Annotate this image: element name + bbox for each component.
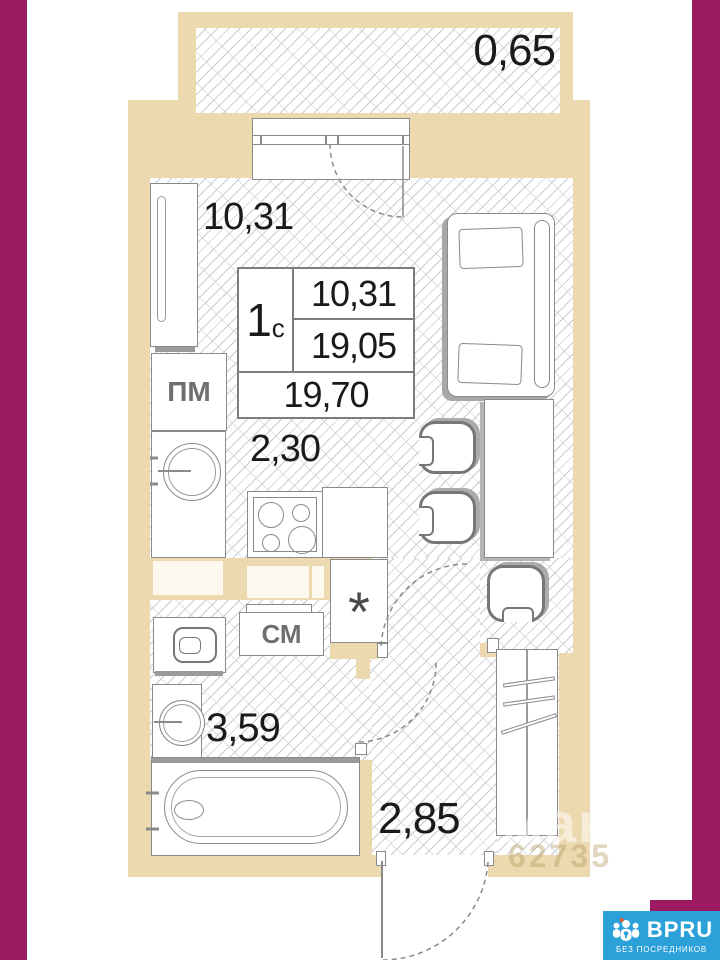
kitchen-counter: [322, 487, 388, 558]
door-jamb: [376, 851, 386, 866]
door-jamb: [484, 851, 494, 866]
hanger: [503, 676, 555, 687]
unit-type-suffix: с: [272, 313, 285, 344]
bpru-logo: BPRU БЕЗ ПОСРЕДНИКОВ: [603, 911, 720, 960]
wall-stub: [330, 643, 378, 659]
wall-niche: [153, 561, 223, 595]
toilet-shadow: [155, 671, 223, 676]
door-jamb: [377, 643, 388, 658]
bathtub: [151, 757, 360, 856]
wall-niche: [312, 566, 324, 598]
room-area-label: 10,31: [203, 196, 293, 239]
washing-machine-label: СМ: [261, 619, 301, 650]
unit-type-cell: 1с: [239, 269, 294, 371]
kitchen-area-label: 2,30: [250, 428, 320, 471]
unit-info-card: 1с 10,31 19,05 19,70: [237, 267, 415, 419]
floorplan-page: ПМ * СМ: [0, 0, 720, 960]
logo-brand-text: BPRU: [647, 919, 713, 941]
kitchen-counter-sink: [151, 431, 226, 558]
balcony-area-label: 0,65: [420, 26, 555, 76]
chair: [419, 491, 476, 544]
people-group-icon: [610, 917, 642, 943]
unit-type: 1: [246, 293, 272, 347]
frame-bar-left: [0, 0, 27, 960]
sofa: [447, 213, 555, 397]
closet-shelf: *: [330, 559, 388, 643]
watermark-code: 62735: [508, 838, 612, 875]
unit-total-area: 19,70: [239, 371, 413, 417]
unit-room-area: 10,31: [294, 269, 413, 320]
sofa-pillow: [457, 343, 522, 385]
table: [484, 399, 554, 558]
sofa-pillow: [458, 227, 523, 269]
logo-tagline: БЕЗ ПОСРЕДНИКОВ: [616, 945, 707, 954]
balcony-window-unit: [252, 118, 410, 180]
hallway-area-label: 2,85: [378, 794, 460, 844]
hanger: [501, 713, 557, 735]
door-jamb: [355, 743, 367, 755]
entrance-opening: [382, 855, 488, 879]
dishwasher: ПМ: [151, 353, 227, 431]
closet-mark: *: [348, 579, 370, 644]
hanger: [503, 695, 555, 706]
dishwasher-label: ПМ: [167, 376, 210, 408]
wall-niche: [247, 566, 309, 598]
toilet: [153, 617, 226, 673]
bathroom-sink: [152, 684, 202, 762]
washing-machine: СМ: [239, 612, 324, 656]
chair: [487, 565, 545, 622]
stove: [247, 491, 323, 558]
bathroom-area-label: 3,59: [206, 706, 280, 751]
chair: [419, 421, 476, 474]
unit-living-area: 19,05: [294, 320, 413, 371]
wall-stub: [356, 659, 370, 679]
frame-bar-right: [692, 0, 720, 902]
fridge-shadow: [155, 347, 195, 352]
fridge: [150, 183, 198, 347]
